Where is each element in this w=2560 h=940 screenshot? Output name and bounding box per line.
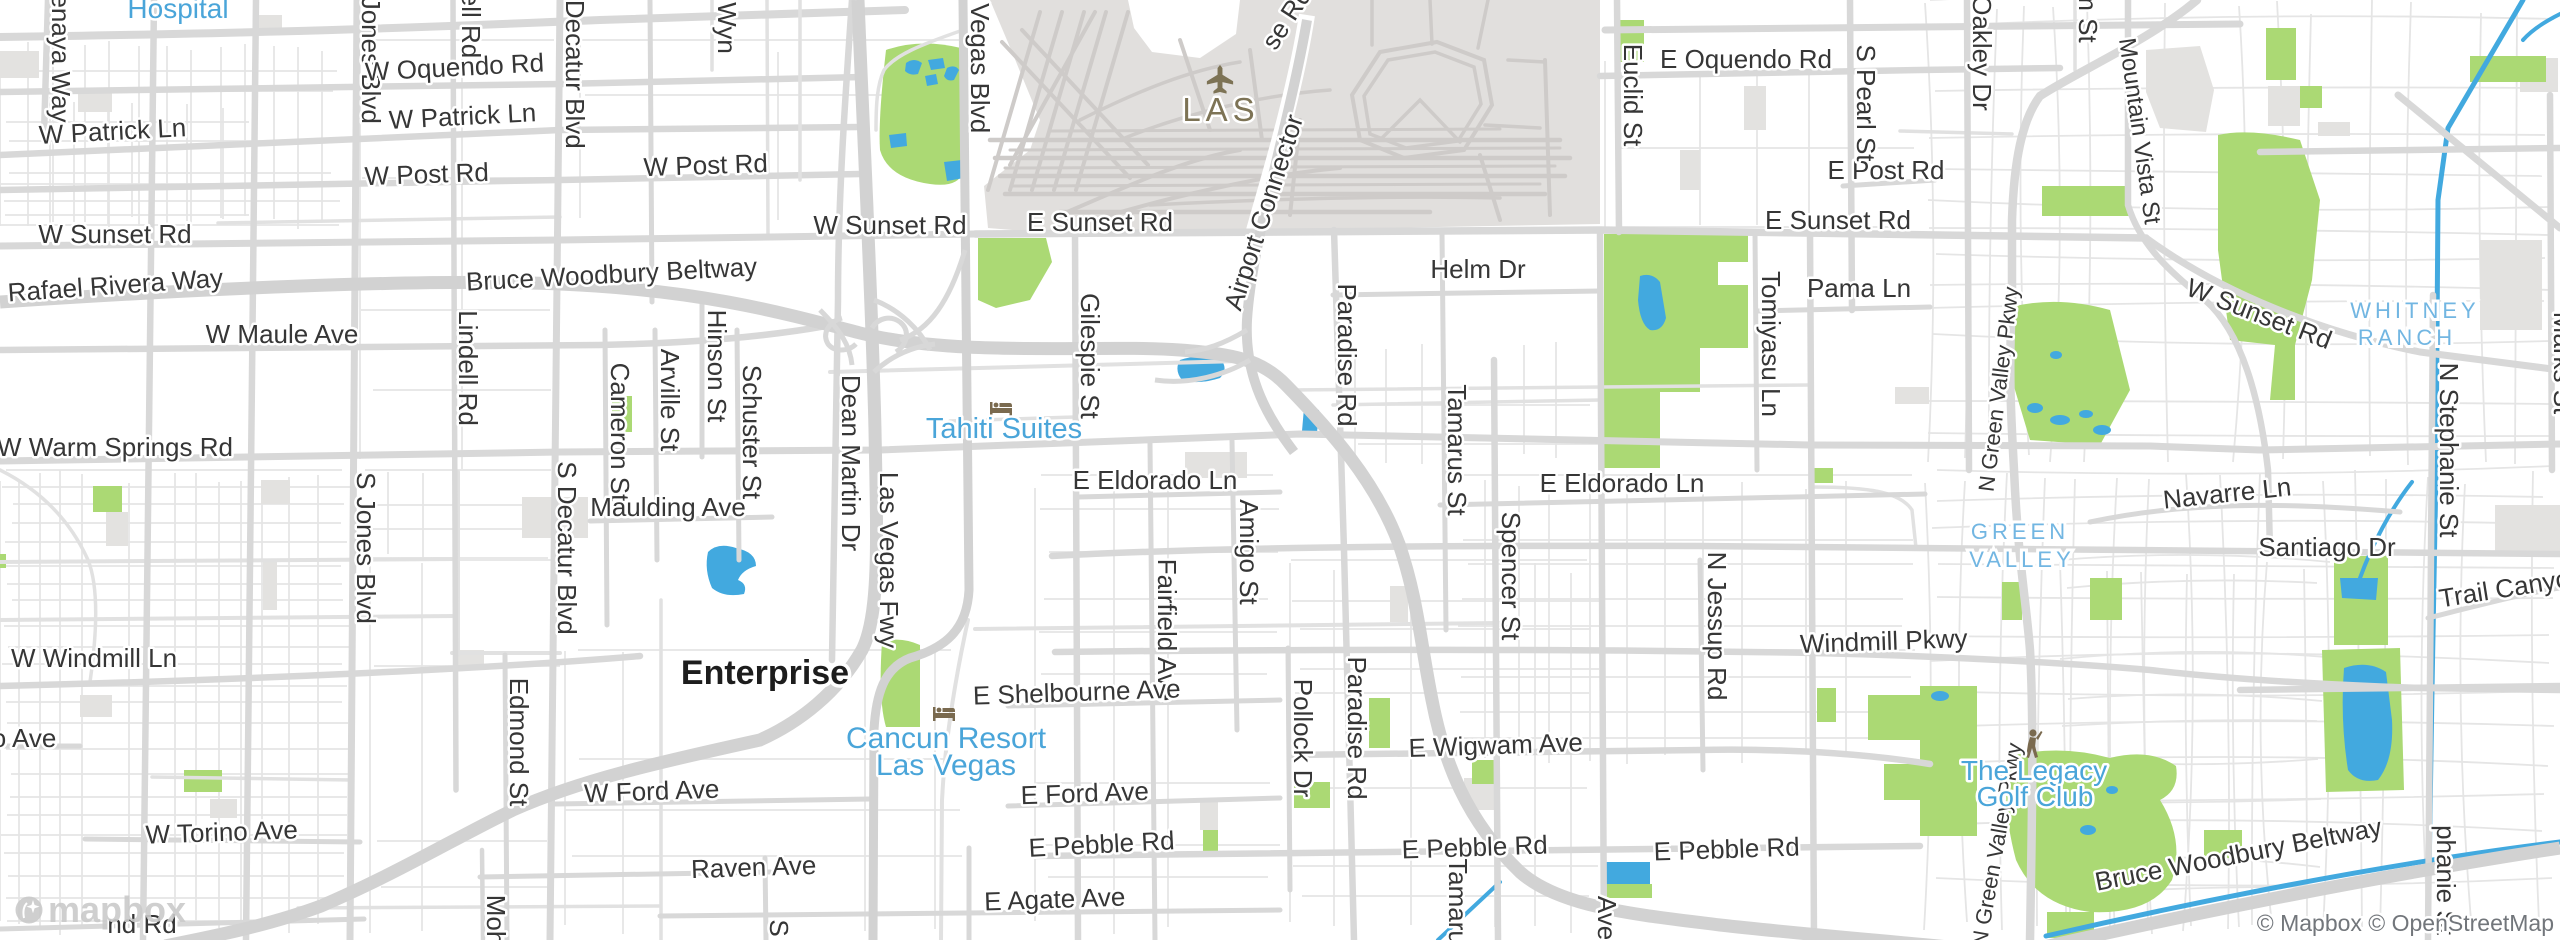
svg-text:Wyn: Wyn [712,2,742,54]
svg-text:Ave: Ave [1592,896,1622,940]
svg-text:E Sunset Rd: E Sunset Rd [1765,205,1911,235]
svg-text:E Eldorado Ln: E Eldorado Ln [1540,468,1705,498]
svg-text:s Vegas Blvd: s Vegas Blvd [965,0,995,133]
svg-text:Tamarus St: Tamarus St [1442,384,1472,516]
svg-text:W Windmill Ln: W Windmill Ln [11,643,177,673]
svg-text:E Agate Ave: E Agate Ave [984,882,1126,917]
svg-text:Tamarus: Tamarus [1443,858,1473,940]
svg-text:Paradise Rd: Paradise Rd [1342,656,1372,799]
svg-text:Raven Ave: Raven Ave [691,850,817,884]
svg-text:S Pearl St: S Pearl St [1851,44,1881,162]
svg-text:Lindell Rd: Lindell Rd [453,310,483,426]
svg-text:RANCH: RANCH [2358,325,2456,350]
svg-text:S Decatur Blvd: S Decatur Blvd [560,0,590,149]
svg-text:W Post Rd: W Post Rd [643,148,768,182]
svg-text:© Mapbox © OpenStreetMap: © Mapbox © OpenStreetMap [2257,910,2554,936]
svg-text:Las Vegas Fwy: Las Vegas Fwy [874,472,904,648]
svg-text:Pama Ln: Pama Ln [1807,273,1911,303]
svg-text:Enterprise: Enterprise [681,654,849,692]
svg-text:E Oquendo Rd: E Oquendo Rd [1660,44,1832,74]
svg-text:W Torino Ave: W Torino Ave [145,814,298,849]
svg-text:W Warm Springs Rd: W Warm Springs Rd [0,432,233,462]
svg-text:Paradise Rd: Paradise Rd [1332,283,1362,426]
svg-text:E Pebble Rd: E Pebble Rd [1401,829,1548,864]
svg-text:Cameron St: Cameron St [605,363,635,502]
svg-text:S: S [764,919,794,936]
svg-text:E Pebble Rd: E Pebble Rd [1653,831,1800,866]
svg-text:Arville St: Arville St [655,349,685,452]
svg-text:Dean Martin Dr: Dean Martin Dr [836,375,866,552]
svg-text:Hinson St: Hinson St [702,310,732,423]
svg-text:Maulding Ave: Maulding Ave [590,492,746,522]
svg-text:Spencer St: Spencer St [1496,512,1526,641]
svg-text:m St: m St [2073,0,2103,43]
svg-text:Hospital: Hospital [127,0,228,24]
svg-text:N Jessup Rd: N Jessup Rd [1702,552,1732,701]
svg-text:VALLEY: VALLEY [1969,547,2075,572]
svg-text:W Sunset Rd: W Sunset Rd [38,219,191,249]
svg-text:Santiago Dr: Santiago Dr [2258,532,2396,562]
svg-text:Amigo St: Amigo St [1234,499,1264,605]
svg-text:Euclid St: Euclid St [1618,44,1648,147]
svg-text:N Stephanie St: N Stephanie St [2434,363,2464,539]
svg-text:E Post Rd: E Post Rd [1827,155,1944,185]
svg-text:S Jones Blvd: S Jones Blvd [351,472,381,624]
svg-text:Golf Club: Golf Club [1977,781,2094,812]
svg-text:E Wigwam Ave: E Wigwam Ave [1408,727,1583,763]
svg-text:E Ford Ave: E Ford Ave [1020,776,1149,810]
svg-text:W Maule Ave: W Maule Ave [206,319,359,349]
svg-text:Moh: Moh [481,895,511,940]
svg-text:enaya Way: enaya Way [46,0,76,123]
svg-text:Gilespie St: Gilespie St [1075,293,1105,419]
svg-text:Tahiti Suites: Tahiti Suites [926,413,1082,445]
svg-text:Las Vegas: Las Vegas [876,749,1016,782]
svg-text:Pollock Dr: Pollock Dr [1288,679,1318,798]
svg-text:ell Rd: ell Rd [456,0,486,58]
svg-text:Oakley Dr: Oakley Dr [1967,0,1997,111]
svg-text:Helm Dr: Helm Dr [1430,254,1526,284]
svg-text:Windmill Pkwy: Windmill Pkwy [1799,623,1968,659]
svg-text:WHITNEY: WHITNEY [2350,298,2479,323]
svg-text:W Post Rd: W Post Rd [364,157,489,191]
svg-text:GREEN: GREEN [1971,519,2069,544]
svg-text:W Sunset Rd: W Sunset Rd [813,210,966,240]
svg-text:E Sunset Rd: E Sunset Rd [1027,207,1173,237]
svg-text:mapbox: mapbox [48,889,186,930]
svg-text:Tomiyasu Ln: Tomiyasu Ln [1756,271,1786,417]
svg-text:LAS: LAS [1182,91,1259,128]
svg-text:o Ave: o Ave [0,723,56,753]
svg-text:Edmond St: Edmond St [504,678,534,807]
svg-text:S Decatur Blvd: S Decatur Blvd [552,461,582,634]
svg-text:W Ford Ave: W Ford Ave [584,774,720,809]
svg-text:E Eldorado Ln: E Eldorado Ln [1073,465,1238,495]
svg-text:Marks St: Marks St [2548,312,2560,415]
svg-text:Schuster St: Schuster St [737,365,767,500]
